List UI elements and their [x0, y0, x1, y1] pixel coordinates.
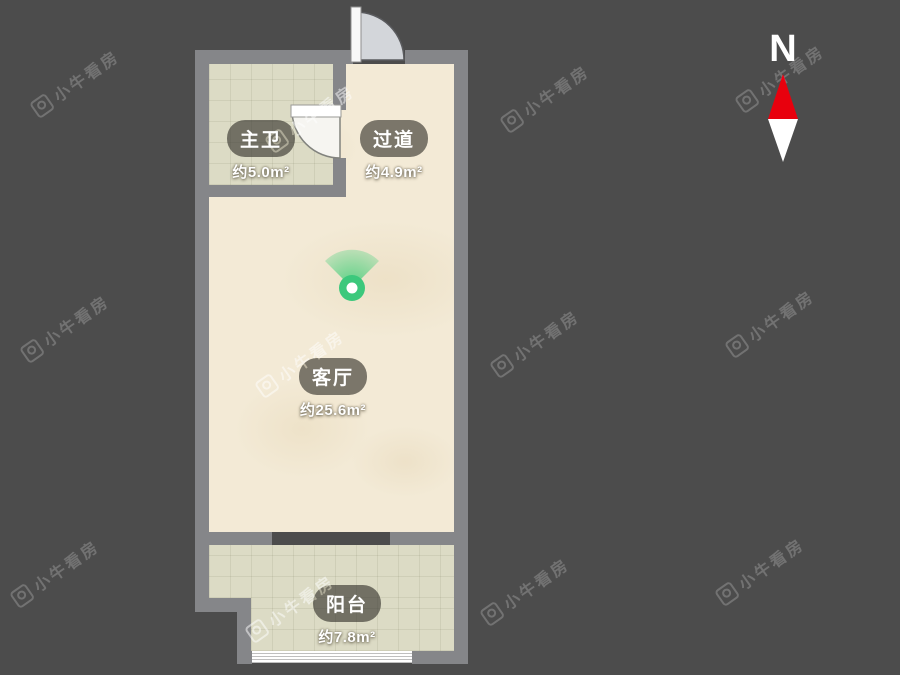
watermark: 小牛看房: [722, 283, 819, 361]
watermark-text: 小牛看房: [518, 58, 594, 121]
wall-bathroom-bottom: [195, 185, 346, 197]
camera-icon: [19, 337, 45, 363]
wall-right: [454, 50, 468, 664]
watermark: 小牛看房: [17, 288, 114, 366]
watermark: 小牛看房: [487, 303, 584, 381]
watermark: 小牛看房: [27, 43, 124, 121]
camera-icon: [29, 92, 55, 118]
wall-balcony-divider-left: [209, 532, 272, 545]
watermark-text: 小牛看房: [733, 531, 809, 594]
watermark: 小牛看房: [497, 58, 594, 136]
camera-icon: [714, 580, 740, 606]
wall-top-left: [195, 50, 353, 64]
watermark-text: 小牛看房: [508, 303, 584, 366]
bathroom-door: [288, 102, 350, 164]
camera-icon: [479, 600, 505, 626]
floorplan-canvas: 主卫 约5.0m² 过道 约4.9m² 客厅 约25.6m² 阳台 约7.8m²…: [0, 0, 900, 675]
watermark: 小牛看房: [7, 533, 104, 611]
watermark: 小牛看房: [477, 551, 574, 629]
entry-door: [345, 5, 415, 65]
wall-balcony-divider-right: [390, 532, 454, 545]
wall-left: [195, 50, 209, 612]
watermark-text: 小牛看房: [48, 43, 124, 106]
compass-north-label: N: [760, 30, 806, 68]
watermark-text: 小牛看房: [743, 283, 819, 346]
compass: N: [760, 30, 806, 164]
panorama-viewpoint-marker[interactable]: [312, 246, 392, 308]
balcony-floor: [251, 598, 454, 651]
compass-needle-icon: [767, 72, 799, 164]
camera-icon: [724, 332, 750, 358]
wall-bottom-left: [237, 651, 252, 664]
camera-icon: [734, 87, 760, 113]
watermark-text: 小牛看房: [498, 551, 574, 614]
camera-icon: [489, 352, 515, 378]
watermark: 小牛看房: [712, 531, 809, 609]
balcony-floor: [209, 545, 454, 598]
watermark-text: 小牛看房: [28, 533, 104, 596]
watermark-text: 小牛看房: [38, 288, 114, 351]
camera-icon: [499, 107, 525, 133]
camera-icon: [9, 582, 35, 608]
wall-bottom-right: [412, 651, 468, 664]
balcony-window: [252, 651, 412, 663]
